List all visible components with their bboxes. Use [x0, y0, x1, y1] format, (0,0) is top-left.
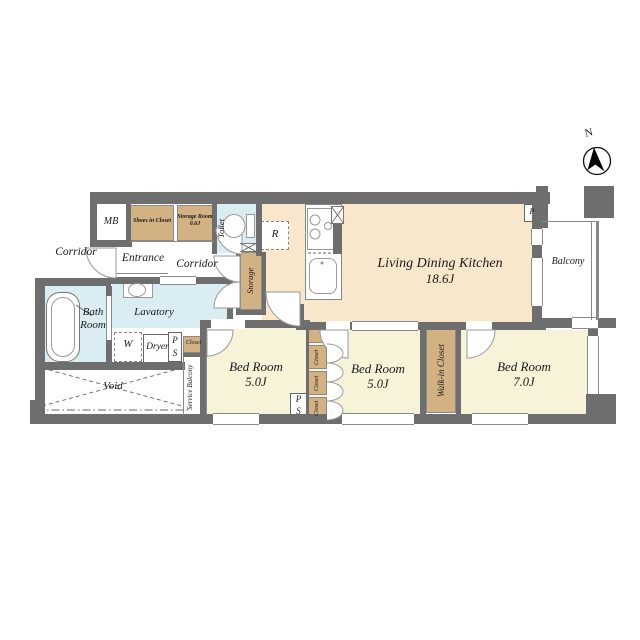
- bedroom-right-name: Bed Room: [497, 359, 551, 374]
- door-arc-bedroom1: [207, 330, 233, 356]
- ps1-s: S: [173, 348, 178, 358]
- label-walk-in-closet: Walk-in Closet: [427, 331, 455, 410]
- label-storage: Storage: [241, 255, 261, 307]
- label-corridor-common: Corridor: [44, 246, 108, 259]
- ps2-p: P: [296, 394, 302, 404]
- label-storage-room: Storage Room 0.6J: [177, 214, 213, 228]
- ldk-area: 18.6J: [426, 271, 455, 286]
- label-entrance: Entrance: [112, 252, 174, 265]
- label-pipe-shaft-1: P S: [168, 334, 182, 359]
- label-corridor-inner: Corridor: [166, 258, 228, 271]
- door-arc-bedroom3: [467, 330, 495, 358]
- ldk-name: Living Dining Kitchen: [377, 256, 502, 271]
- label-void: Void: [83, 380, 143, 393]
- label-shoes-in-closet: Shoes in Closet: [129, 218, 175, 225]
- bedroom-middle-area: 5.0J: [367, 377, 388, 391]
- label-meter-box: MB: [92, 216, 130, 227]
- label-closet-small: Closet: [183, 340, 204, 347]
- label-pipe-small: P: [524, 207, 540, 216]
- label-balcony: Balcony: [539, 256, 597, 267]
- label-washer: W: [117, 338, 139, 351]
- sink-faucet: [321, 262, 324, 265]
- ps2-s: S: [296, 406, 301, 416]
- label-bedroom-middle: Bed Room 5.0J: [328, 362, 428, 392]
- label-bedroom-right: Bed Room 7.0J: [474, 360, 574, 390]
- bedroom-left-area: 5.0J: [245, 375, 266, 389]
- label-ldk: Living Dining Kitchen 18.6J: [365, 256, 515, 288]
- label-bath: Bath Room: [68, 306, 118, 331]
- vent-hatch-kitchen: [331, 206, 344, 224]
- bedroom-middle-name: Bed Room: [351, 361, 405, 376]
- label-closet-3: Closet: [309, 398, 326, 419]
- label-lavatory: Lavatory: [121, 306, 187, 319]
- bath-line1: Bath: [83, 306, 104, 318]
- closet-door-arc-4: [327, 401, 343, 420]
- label-pipe-shaft-2: P S: [290, 394, 307, 417]
- door-arc-storage-lower: [214, 282, 240, 308]
- bedroom-right-area: 7.0J: [513, 375, 534, 389]
- label-refrigerator: R: [261, 228, 289, 241]
- label-toilet: Toilet: [214, 207, 230, 249]
- label-closet-2: Closet: [309, 372, 326, 394]
- storage-room-area: 0.6J: [190, 221, 201, 227]
- label-service-balcony: Service Balcony: [185, 361, 197, 413]
- door-arc-ldk: [266, 292, 300, 326]
- vent-hatch-toilet: [240, 243, 257, 252]
- stove-burners: [310, 215, 332, 239]
- basin-bowl: [129, 284, 146, 297]
- storage-room-name: Storage Room: [177, 214, 212, 220]
- floor-plan: Corridor Entrance Corridor MB Shoes in C…: [0, 0, 640, 640]
- label-bedroom-left: Bed Room 5.0J: [206, 360, 306, 390]
- bedroom-left-name: Bed Room: [229, 359, 283, 374]
- ps1-p: P: [172, 335, 178, 345]
- bath-line2: Room: [80, 319, 106, 331]
- label-closet-1: Closet: [309, 346, 326, 368]
- north-compass: [584, 148, 611, 175]
